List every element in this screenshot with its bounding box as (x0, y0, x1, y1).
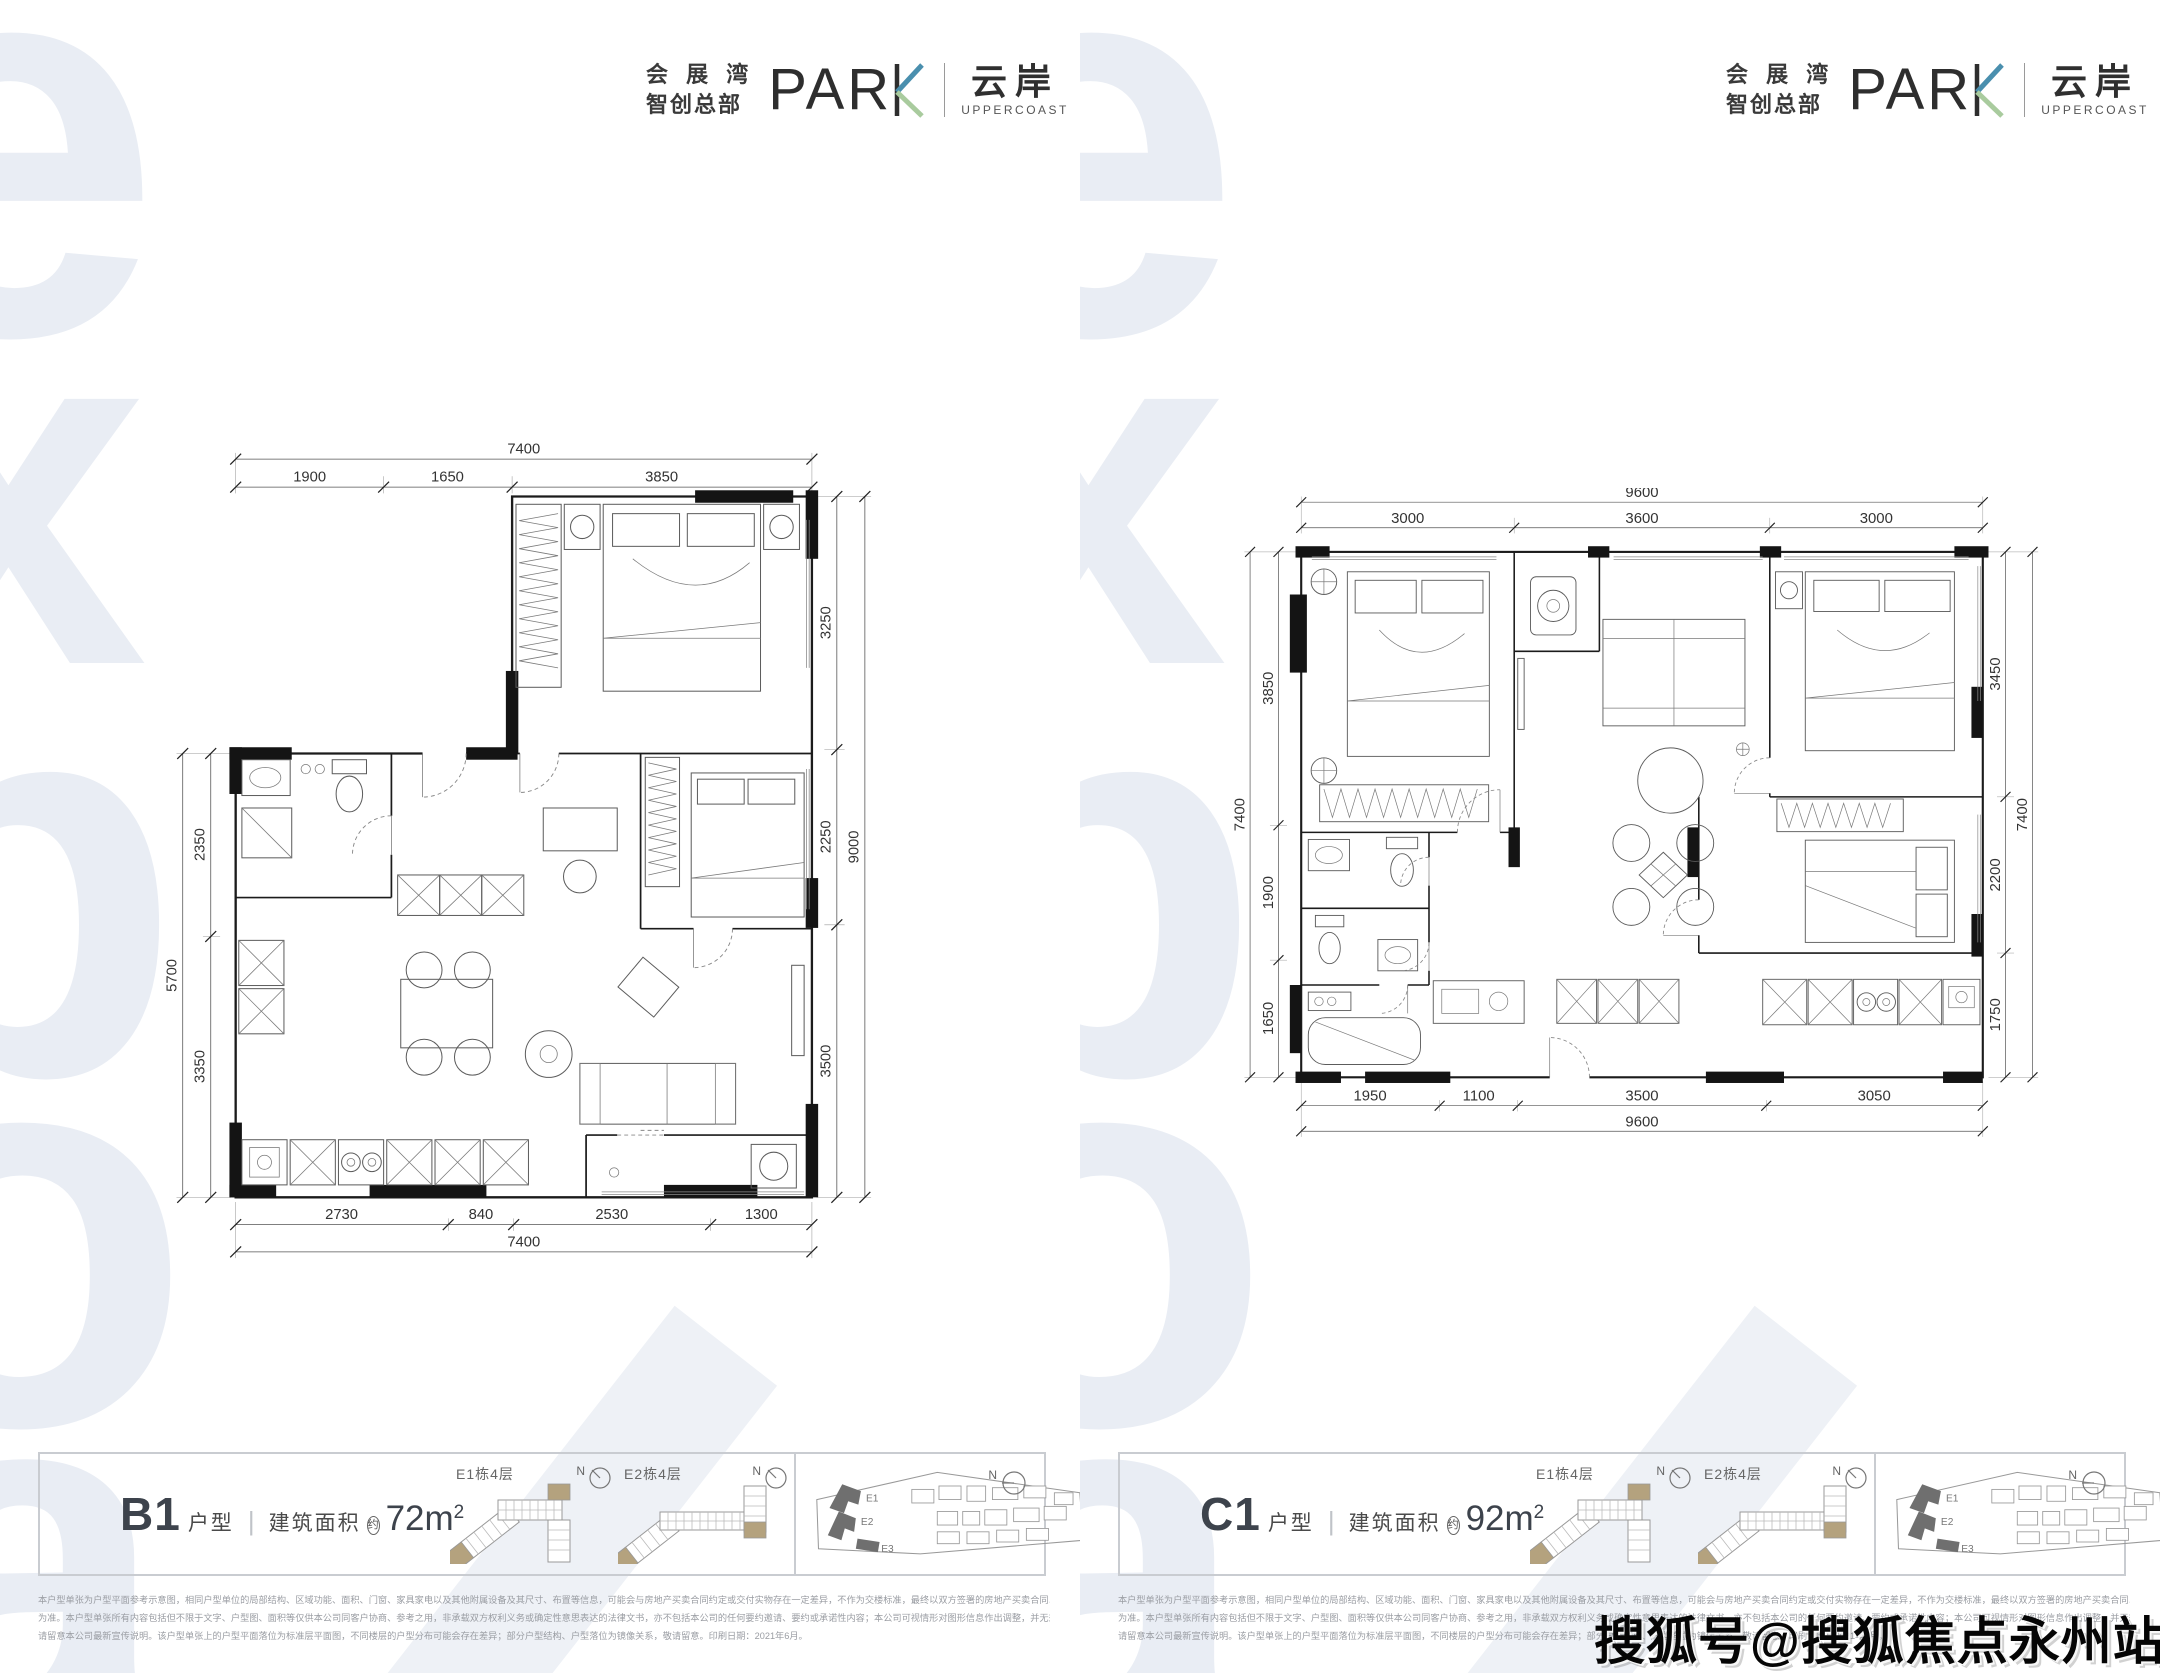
c1-walls (1301, 552, 1983, 1083)
approx-icon: 约 (1447, 1516, 1460, 1535)
brand-subname-cn: 云岸 (2041, 62, 2149, 102)
svg-text:1750: 1750 (1988, 998, 2004, 1031)
svg-text:3500: 3500 (1625, 1089, 1658, 1105)
bg-letter: e (0, 0, 161, 420)
site-e3-label: E3 (881, 1544, 894, 1555)
svg-text:9600: 9600 (1625, 1114, 1658, 1130)
svg-text:9600: 9600 (1625, 488, 1658, 501)
brand-park-text: PAR (1848, 61, 1972, 119)
svg-text:3850: 3850 (1261, 672, 1277, 705)
svg-text:3850: 3850 (645, 470, 678, 486)
c1-bedroom3 (1777, 799, 1955, 942)
c1-dim-bottom: 1950 1100 3500 3050 9600 (1296, 1082, 1988, 1137)
svg-text:2730: 2730 (325, 1207, 358, 1223)
c1-utility (1531, 577, 1576, 635)
site-e2-label: E2 (1941, 1517, 1954, 1528)
b1-kitchen (239, 940, 529, 1185)
unit-info-bar: B1 户型 | 建筑面积 约 72m 2 E1栋4层 N (38, 1452, 1046, 1576)
svg-text:3500: 3500 (819, 1045, 835, 1078)
svg-text:2530: 2530 (595, 1207, 628, 1223)
site-plan: E1 E2 E3 N (1876, 1454, 2124, 1574)
flyer-page: e x p o a 会 展 湾 智创总部 PAR 云岸 (0, 0, 2160, 1673)
svg-text:3450: 3450 (1988, 657, 2004, 690)
c1-vanity (1433, 981, 1524, 1024)
site-e2-label: E2 (861, 1517, 874, 1528)
svg-text:3600: 3600 (1625, 511, 1658, 527)
b1-bathroom (242, 760, 367, 858)
c1-bathrooms (1308, 837, 1417, 970)
svg-text:7400: 7400 (1232, 798, 1248, 831)
c1-dim-right: 3450 2200 1750 7400 (1988, 547, 2038, 1082)
panel-c1: e x p o a 会 展 湾 智创总部 PAR 云岸 (1080, 0, 2160, 1673)
site-plan-drawing: E1 E2 E3 (1890, 1462, 2160, 1566)
c1-dim-left: 3850 1900 1650 7400 (1232, 547, 1295, 1082)
svg-text:1900: 1900 (1261, 876, 1277, 909)
logo-divider (944, 63, 945, 117)
unit-code: B1 (120, 1487, 181, 1541)
brand-chinese: 会 展 湾 智创总部 (1726, 60, 1834, 119)
area-value: 92m (1466, 1499, 1534, 1539)
svg-text:1650: 1650 (1261, 1002, 1277, 1035)
keyplan-e1: E1栋4层 N (450, 1462, 618, 1566)
sohu-watermark: 搜狐号@搜狐焦点永州站 (1594, 1600, 2160, 1673)
north-compass-icon: N (2068, 1468, 2108, 1498)
north-compass-icon: N (1832, 1464, 1868, 1490)
panel-b1: e x p o a 会 展 湾 智创总部 PAR 云岸 (0, 0, 1080, 1673)
keyplan-e2-label: E2栋4层 (1704, 1464, 1762, 1484)
c1-bedroom1 (1311, 569, 1489, 822)
svg-text:1950: 1950 (1353, 1089, 1386, 1105)
b1-dim-top: 7400 1900 1650 3850 (230, 442, 817, 493)
b1-balcony (609, 1144, 796, 1188)
svg-text:1100: 1100 (1463, 1089, 1495, 1105)
brand-chinese: 会 展 湾 智创总部 (646, 60, 754, 119)
svg-text:3050: 3050 (1858, 1089, 1891, 1105)
north-label: N (1832, 1464, 1841, 1478)
keyplan-e2: E2栋4层 N (1698, 1462, 1874, 1566)
north-label: N (1656, 1464, 1665, 1478)
b1-dim-left: 2350 3350 5700 (164, 748, 231, 1203)
site-plan: E1 E2 E3 N (796, 1454, 1044, 1574)
b1-floor-plan: 7400 1900 1650 3850 3250 2250 3500 9000 (150, 442, 882, 1275)
svg-text:7400: 7400 (507, 1234, 540, 1250)
b1-dining (401, 952, 493, 1075)
brand-park: PAR (768, 61, 926, 119)
c1-floor-plan: 9600 3000 3600 3000 3850 1900 1650 7400 (1216, 488, 2068, 1163)
b1-dim-right: 3250 2250 3500 9000 (817, 491, 872, 1203)
north-compass-icon: N (752, 1464, 788, 1490)
area-label: 建筑面积 (269, 1507, 361, 1537)
north-label: N (752, 1464, 761, 1478)
area-value: 72m (386, 1499, 454, 1539)
svg-text:3000: 3000 (1860, 511, 1893, 527)
bg-letter: x (1080, 240, 1228, 740)
unit-info: C1 户型 | 建筑面积 约 92m 2 (1120, 1487, 1530, 1541)
bg-letter: x (0, 240, 148, 740)
b1-doors (352, 753, 732, 1135)
keyplan-e1-drawing (1530, 1482, 1698, 1564)
svg-text:1650: 1650 (431, 470, 464, 486)
keyplan-e1-label: E1栋4层 (1536, 1464, 1594, 1484)
b1-dim-bottom: 2730 840 2530 1300 7400 (230, 1202, 817, 1258)
c1-bath-bottom (1308, 992, 1420, 1064)
b1-living (525, 957, 804, 1124)
unit-suffix: 户型 (1268, 1507, 1314, 1537)
keyplan-e2-label: E2栋4层 (624, 1464, 682, 1484)
north-label: N (2068, 1468, 2077, 1482)
info-divider: | (248, 1506, 255, 1537)
north-compass-icon: N (988, 1468, 1028, 1498)
keyplan-e2-drawing (1698, 1482, 1874, 1564)
svg-text:3250: 3250 (819, 606, 835, 639)
brand-logo: 会 展 湾 智创总部 PAR 云岸 UPPERCOAST (646, 60, 1069, 119)
keyplan-e1-drawing (450, 1482, 618, 1564)
b1-walls (236, 497, 812, 1198)
brand-line1: 会 展 湾 (1726, 60, 1834, 90)
info-divider: | (1328, 1506, 1335, 1537)
svg-text:3350: 3350 (193, 1050, 209, 1083)
svg-text:7400: 7400 (2015, 798, 2031, 831)
site-e1-label: E1 (866, 1493, 879, 1504)
svg-text:2200: 2200 (1988, 858, 2004, 891)
svg-text:9000: 9000 (847, 830, 863, 863)
svg-text:5700: 5700 (164, 959, 180, 992)
bg-letter: e (1080, 0, 1241, 420)
svg-text:3000: 3000 (1391, 511, 1424, 527)
site-e1-label: E1 (1946, 1493, 1959, 1504)
brand-subname-en: UPPERCOAST (961, 103, 1069, 117)
b1-windows (602, 520, 810, 1195)
brand-park-text: PAR (768, 61, 892, 119)
keyplan-e2: E2栋4层 N (618, 1462, 794, 1566)
brand-line1: 会 展 湾 (646, 60, 754, 90)
brand-subname: 云岸 UPPERCOAST (2041, 62, 2149, 118)
site-plan-drawing: E1 E2 E3 (810, 1462, 1080, 1566)
c1-kitchen (1763, 979, 1980, 1024)
north-label: N (576, 1464, 585, 1478)
area-label: 建筑面积 (1349, 1507, 1441, 1537)
logo-divider (2024, 63, 2025, 117)
c1-windows (1312, 557, 1980, 943)
unit-info-bar: C1 户型 | 建筑面积 约 92m 2 E1栋4层 N (1118, 1452, 2126, 1576)
svg-text:7400: 7400 (507, 442, 540, 458)
brand-line2: 智创总部 (1726, 90, 1834, 120)
disclaimer: 本户型单张为户型平面参考示意图，相同户型单位的局部结构、区域功能、面积、门窗、家… (38, 1592, 1050, 1646)
b1-bedroom1 (516, 504, 799, 691)
unit-code: C1 (1200, 1487, 1261, 1541)
c1-dim-top: 9600 3000 3600 3000 (1296, 488, 1988, 533)
north-compass-icon: N (576, 1464, 612, 1490)
c1-storage (1557, 979, 1679, 1023)
disclaimer-line: 请留意本公司最新宣传说明。该户型单张上的户型平面落位为标准层平面图，不同楼层的户… (38, 1628, 1050, 1646)
svg-text:1900: 1900 (293, 470, 326, 486)
approx-icon: 约 (367, 1516, 380, 1535)
north-compass-icon: N (1656, 1464, 1692, 1490)
keyplan-e1: E1栋4层 N (1530, 1462, 1698, 1566)
keyplan-e1-label: E1栋4层 (456, 1464, 514, 1484)
svg-text:1300: 1300 (745, 1207, 778, 1223)
svg-text:2350: 2350 (193, 828, 209, 861)
c1-bedroom2 (1775, 572, 1954, 751)
b1-study (543, 808, 617, 893)
disclaimer-line: 为准。本户型单张所有内容包括但不限于文字、户型图、面积等仅供本公司同客户协商、参… (38, 1610, 1050, 1628)
disclaimer-line: 本户型单张为户型平面参考示意图，相同户型单位的局部结构、区域功能、面积、门窗、家… (38, 1592, 1050, 1610)
brand-subname-cn: 云岸 (961, 62, 1069, 102)
keyplan-e2-drawing (618, 1482, 794, 1564)
north-label: N (988, 1468, 997, 1482)
svg-text:2250: 2250 (819, 820, 835, 853)
brand-logo: 会 展 湾 智创总部 PAR 云岸 UPPERCOAST (1726, 60, 2149, 119)
b1-shear-walls (229, 490, 818, 1197)
b1-bedroom2 (645, 757, 804, 917)
brand-subname-en: UPPERCOAST (2041, 103, 2149, 117)
svg-text:840: 840 (469, 1207, 494, 1223)
b1-storage-cabinets (398, 875, 524, 915)
c1-living (1518, 619, 1749, 813)
brand-subname: 云岸 UPPERCOAST (961, 62, 1069, 118)
site-e3-label: E3 (1961, 1544, 1974, 1555)
brand-park: PAR (1848, 61, 2006, 119)
unit-suffix: 户型 (188, 1507, 234, 1537)
unit-info: B1 户型 | 建筑面积 约 72m 2 (40, 1487, 450, 1541)
park-k-icon (892, 62, 926, 118)
brand-line2: 智创总部 (646, 90, 754, 120)
park-k-icon (1972, 62, 2006, 118)
